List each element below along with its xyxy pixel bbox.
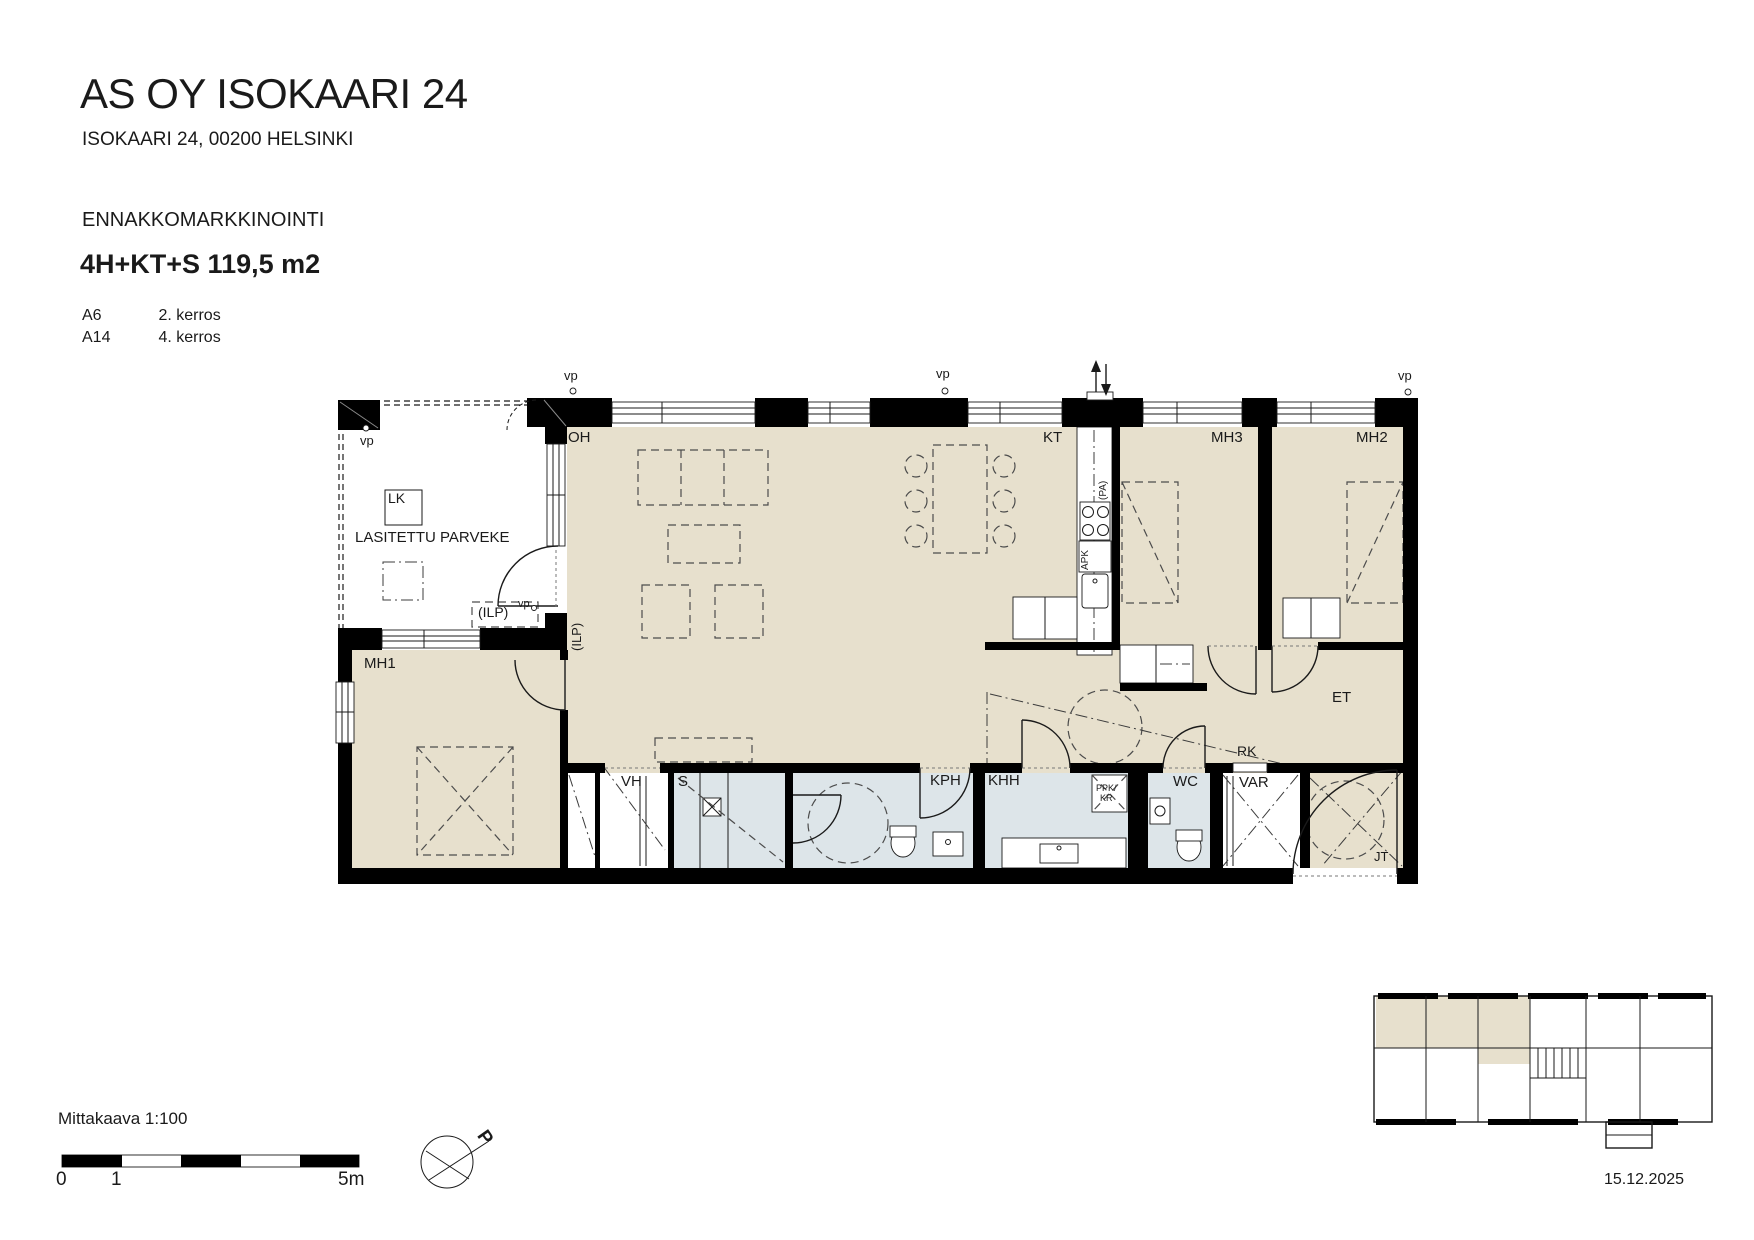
label-kr: KR <box>1100 794 1113 803</box>
room-label-mh1: MH1 <box>364 656 396 672</box>
room-label-khh: KHH <box>988 773 1020 789</box>
label-vp: vp <box>518 599 530 611</box>
room-label-var: VAR <box>1239 775 1269 791</box>
label-apk: APK <box>1081 550 1092 570</box>
scale-tick-1: 1 <box>111 1170 122 1190</box>
unit-id: A14 <box>82 330 154 347</box>
plan-date: 15.12.2025 <box>1604 1172 1684 1189</box>
label-vp: vp <box>564 369 578 383</box>
floor-plan-page: AS OY ISOKAARI 24 ISOKAARI 24, 00200 HEL… <box>0 0 1754 1240</box>
room-label-mh2: MH2 <box>1356 430 1388 446</box>
label-vp: vp <box>936 367 950 381</box>
apartment-type: 4H+KT+S 119,5 m2 <box>80 250 320 278</box>
label-ilp: (ILP) <box>478 605 508 620</box>
address: ISOKAARI 24, 00200 HELSINKI <box>82 130 353 150</box>
label-vp: vp <box>1398 369 1412 383</box>
label-vp: vp <box>360 434 374 448</box>
scale-tick-0: 0 <box>56 1170 67 1190</box>
vent-icon <box>1087 360 1113 400</box>
unit-row: A6 2. kerros <box>82 308 221 325</box>
scale-tick-5m: 5m <box>338 1170 364 1190</box>
room-label-mh3: MH3 <box>1211 430 1243 446</box>
room-label-oh: OH <box>568 430 591 446</box>
label-ilp-vertical: (ILP) <box>570 623 584 651</box>
room-label-wc: WC <box>1173 774 1198 790</box>
room-label-et: ET <box>1332 690 1351 706</box>
room-label-lk: LK <box>388 491 405 506</box>
room-label-balcony: LASITETTU PARVEKE <box>355 530 510 546</box>
label-rk: RK <box>1237 744 1256 759</box>
unit-floor: 2. kerros <box>158 307 220 324</box>
page-title: AS OY ISOKAARI 24 <box>80 72 468 116</box>
room-label-kph: KPH <box>930 773 961 789</box>
room-label-sauna: S <box>678 774 688 790</box>
scale-bar <box>62 1155 359 1167</box>
unit-id: A6 <box>82 308 154 325</box>
unit-floor: 4. kerros <box>158 329 220 346</box>
room-label-vh: VH <box>621 774 642 790</box>
scale-label: Mittakaava 1:100 <box>58 1110 187 1128</box>
unit-row: A14 4. kerros <box>82 330 221 347</box>
floor-plan-drawing <box>0 0 1754 1240</box>
marketing-status: ENNAKKOMARKKINOINTI <box>82 210 324 231</box>
label-pa: (PA) <box>1099 481 1110 500</box>
label-jt: JT <box>1374 850 1388 864</box>
room-label-kt: KT <box>1043 430 1062 446</box>
building-overview-map <box>1374 993 1712 1148</box>
